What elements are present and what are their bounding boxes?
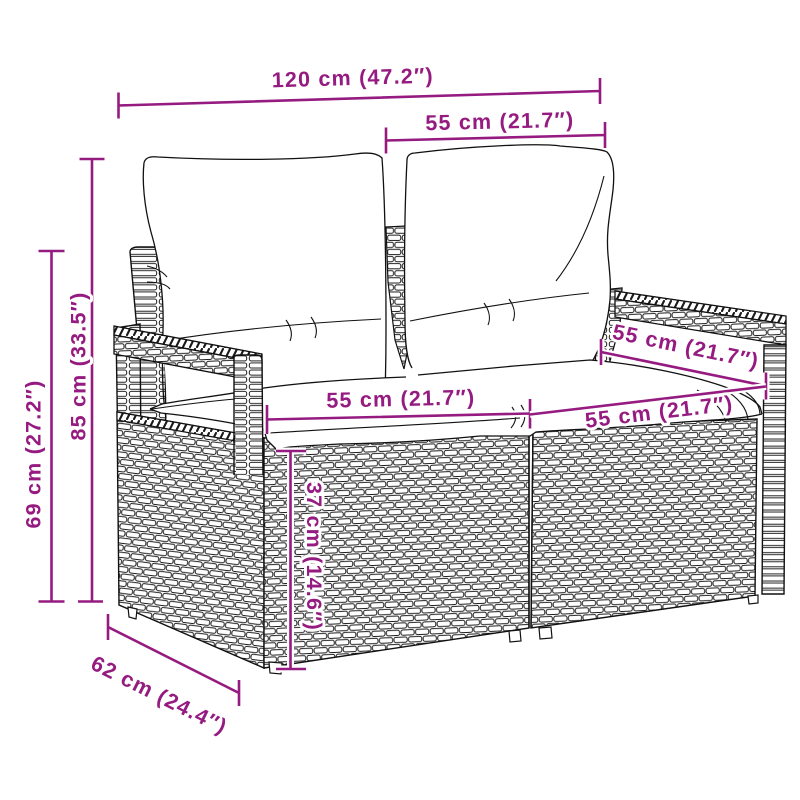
svg-text:120 cm (47.2″): 120 cm (47.2″) xyxy=(271,64,434,93)
svg-text:37 cm (14.6″): 37 cm (14.6″) xyxy=(302,482,326,631)
svg-text:69 cm (27.2″): 69 cm (27.2″) xyxy=(22,380,46,529)
svg-text:55 cm (21.7″): 55 cm (21.7″) xyxy=(425,108,575,135)
svg-text:62 cm (24.4″): 62 cm (24.4″) xyxy=(87,651,231,739)
svg-text:85 cm (33.5″): 85 cm (33.5″) xyxy=(67,292,91,441)
svg-text:55 cm (21.7″): 55 cm (21.7″) xyxy=(326,385,476,412)
